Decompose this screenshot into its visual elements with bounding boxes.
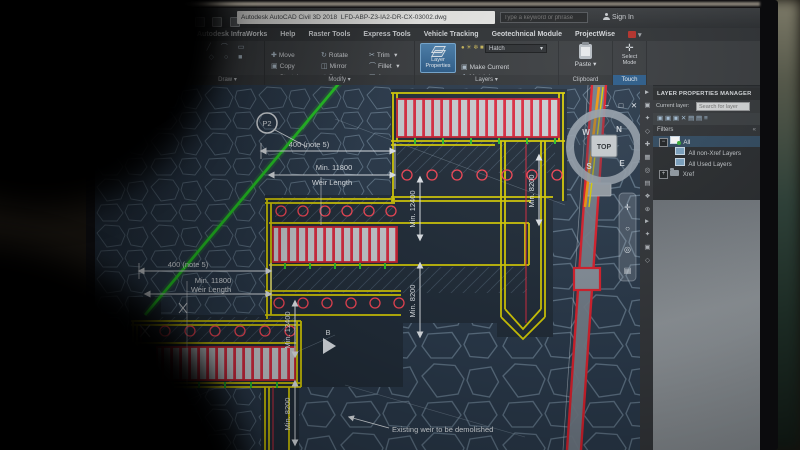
chevron-down-icon: ▾ [540,45,543,54]
navigation-bar[interactable]: ✛ ○ ◎ ▤ [619,193,636,281]
layer-filter-icon [675,147,685,155]
lpm-layer-list-area[interactable] [653,200,760,450]
viewcube-west[interactable]: W [582,128,590,137]
lpm-current-layer-row: Current layer: [653,100,760,113]
dim-min12400-right: Min. 12400 [408,190,417,227]
tab-projectwise[interactable]: ProjectWise [575,31,615,38]
recording-icon[interactable] [628,31,636,38]
lpm-filter-tree: − All All non-Xref Layers All Used Layer… [653,136,760,200]
viewcube-north[interactable]: N [616,125,622,134]
viewport-close-button[interactable]: ✕ [631,101,637,110]
tree-expander-icon[interactable]: + [659,170,668,179]
viewport-minimize-button[interactable]: − [605,101,610,110]
photo-of-monitor: Autodesk AutoCAD Civil 3D 2018 LFD-ABP-Z… [0,0,800,450]
modify-panel-label[interactable]: Modify ▾ [265,75,414,85]
tab-help[interactable]: Help [280,31,295,38]
crosshair-icon: ✛ [613,43,646,54]
help-search-input[interactable] [500,12,588,23]
dim-min8200-left: Min. 8200 [283,398,292,431]
section-marker-label: B [325,328,330,337]
dim-min8200-right: Min. 8200 [408,285,417,318]
layers-panel-label[interactable]: Layers ▾ [415,75,558,85]
clipboard-panel-label: Clipboard [559,75,612,85]
layer-state-icons[interactable]: ● ☀ ❄ ■ [461,44,484,51]
modify-panel: ✚Move ▣Copy ▭Stretch ↻Rotate ◫Mirror ↗Sc… [265,41,415,85]
menu-dropdown-icon[interactable]: ▾ [638,31,642,39]
layer-dropdown[interactable]: Hatch▾ [485,44,547,53]
layer-properties-button[interactable]: Layer Properties [420,43,456,73]
dim-min8200-top: Min. 8200 [527,175,536,208]
layer-properties-manager: LAYER PROPERTIES MANAGER Current layer: … [653,88,760,450]
dim-min11800-lower: Min. 11800 [195,276,232,285]
side-toolbar[interactable]: ►▣✦◇✚▦◎▤❖⊕►✦▣◇ [640,85,653,450]
tree-item-used[interactable]: All Used Layers [653,158,760,169]
dim-weir-length-upper: Weir Length [312,178,352,187]
demolish-note: Existing weir to be demolished [392,425,493,434]
layer-filter-icon [675,158,685,166]
collapse-icon[interactable]: « [753,125,756,136]
dim-min11800-upper: Min. 11800 [316,163,353,172]
tree-item-non-xref[interactable]: All non-Xref Layers [653,147,760,158]
orbit-icon[interactable]: ◎ [624,245,631,254]
layer-search-input[interactable] [696,102,750,111]
zoom-icon[interactable]: ○ [625,224,630,233]
tree-item-xref[interactable]: + Xref [653,169,760,180]
grid-bubble-label: P2 [262,119,271,128]
dim-note400-lower: 400 (note 5) [168,260,209,269]
viewcube[interactable]: N E S W TOP [570,113,638,181]
window-title: Autodesk AutoCAD Civil 3D 2018 LFD-ABP-Z… [237,11,495,24]
touch-panel-label: Touch [613,75,646,85]
layers-panel: Layer Properties ● ☀ ❄ ■ Hatch▾ ▣Make Cu… [415,41,559,85]
tree-item-all[interactable]: − All [653,136,760,147]
pan-icon[interactable]: ✛ [624,203,631,212]
select-mode-button[interactable]: ✛ SelectMode [613,43,646,66]
current-layer-label: Current layer: [656,103,689,109]
dim-min12400-left: Min. 12400 [283,311,292,348]
dim-note400-upper: 400 (note 5) [289,140,330,149]
all-layers-icon [670,136,680,144]
viewport-maximize-button[interactable]: □ [619,101,624,110]
tab-vehicle-tracking[interactable]: Vehicle Tracking [424,31,479,38]
paste-button[interactable]: Paste ▾ [559,44,612,68]
monitor-top-edge [175,2,760,6]
tab-express-tools[interactable]: Express Tools [363,31,410,38]
tab-geotechnical-module[interactable]: Geotechnical Module [492,31,562,38]
tab-raster-tools[interactable]: Raster Tools [308,31,350,38]
lpm-filters-header[interactable]: Filters « [653,125,760,136]
user-icon [603,13,610,20]
dim-weir-length-lower: Weir Length [191,285,231,294]
steering-wheel-icon[interactable]: ▤ [624,266,632,275]
paste-icon [579,44,592,59]
touch-panel: ✛ SelectMode Touch [613,41,647,85]
viewcube-south[interactable]: S [586,162,592,171]
lpm-title: LAYER PROPERTIES MANAGER [653,88,760,100]
tree-expander-icon[interactable]: − [659,138,668,147]
sign-in-button[interactable]: Sign In [603,13,634,21]
viewcube-east[interactable]: E [619,159,625,168]
lpm-toolbar[interactable]: ▣ ▣ ▣ ✕ ▤ ▤ ≡ [653,113,760,125]
folder-icon [670,170,679,176]
clipboard-panel: Paste ▾ Clipboard [559,41,613,85]
layers-stack-icon [433,46,443,54]
viewcube-top-label: TOP [597,144,612,151]
